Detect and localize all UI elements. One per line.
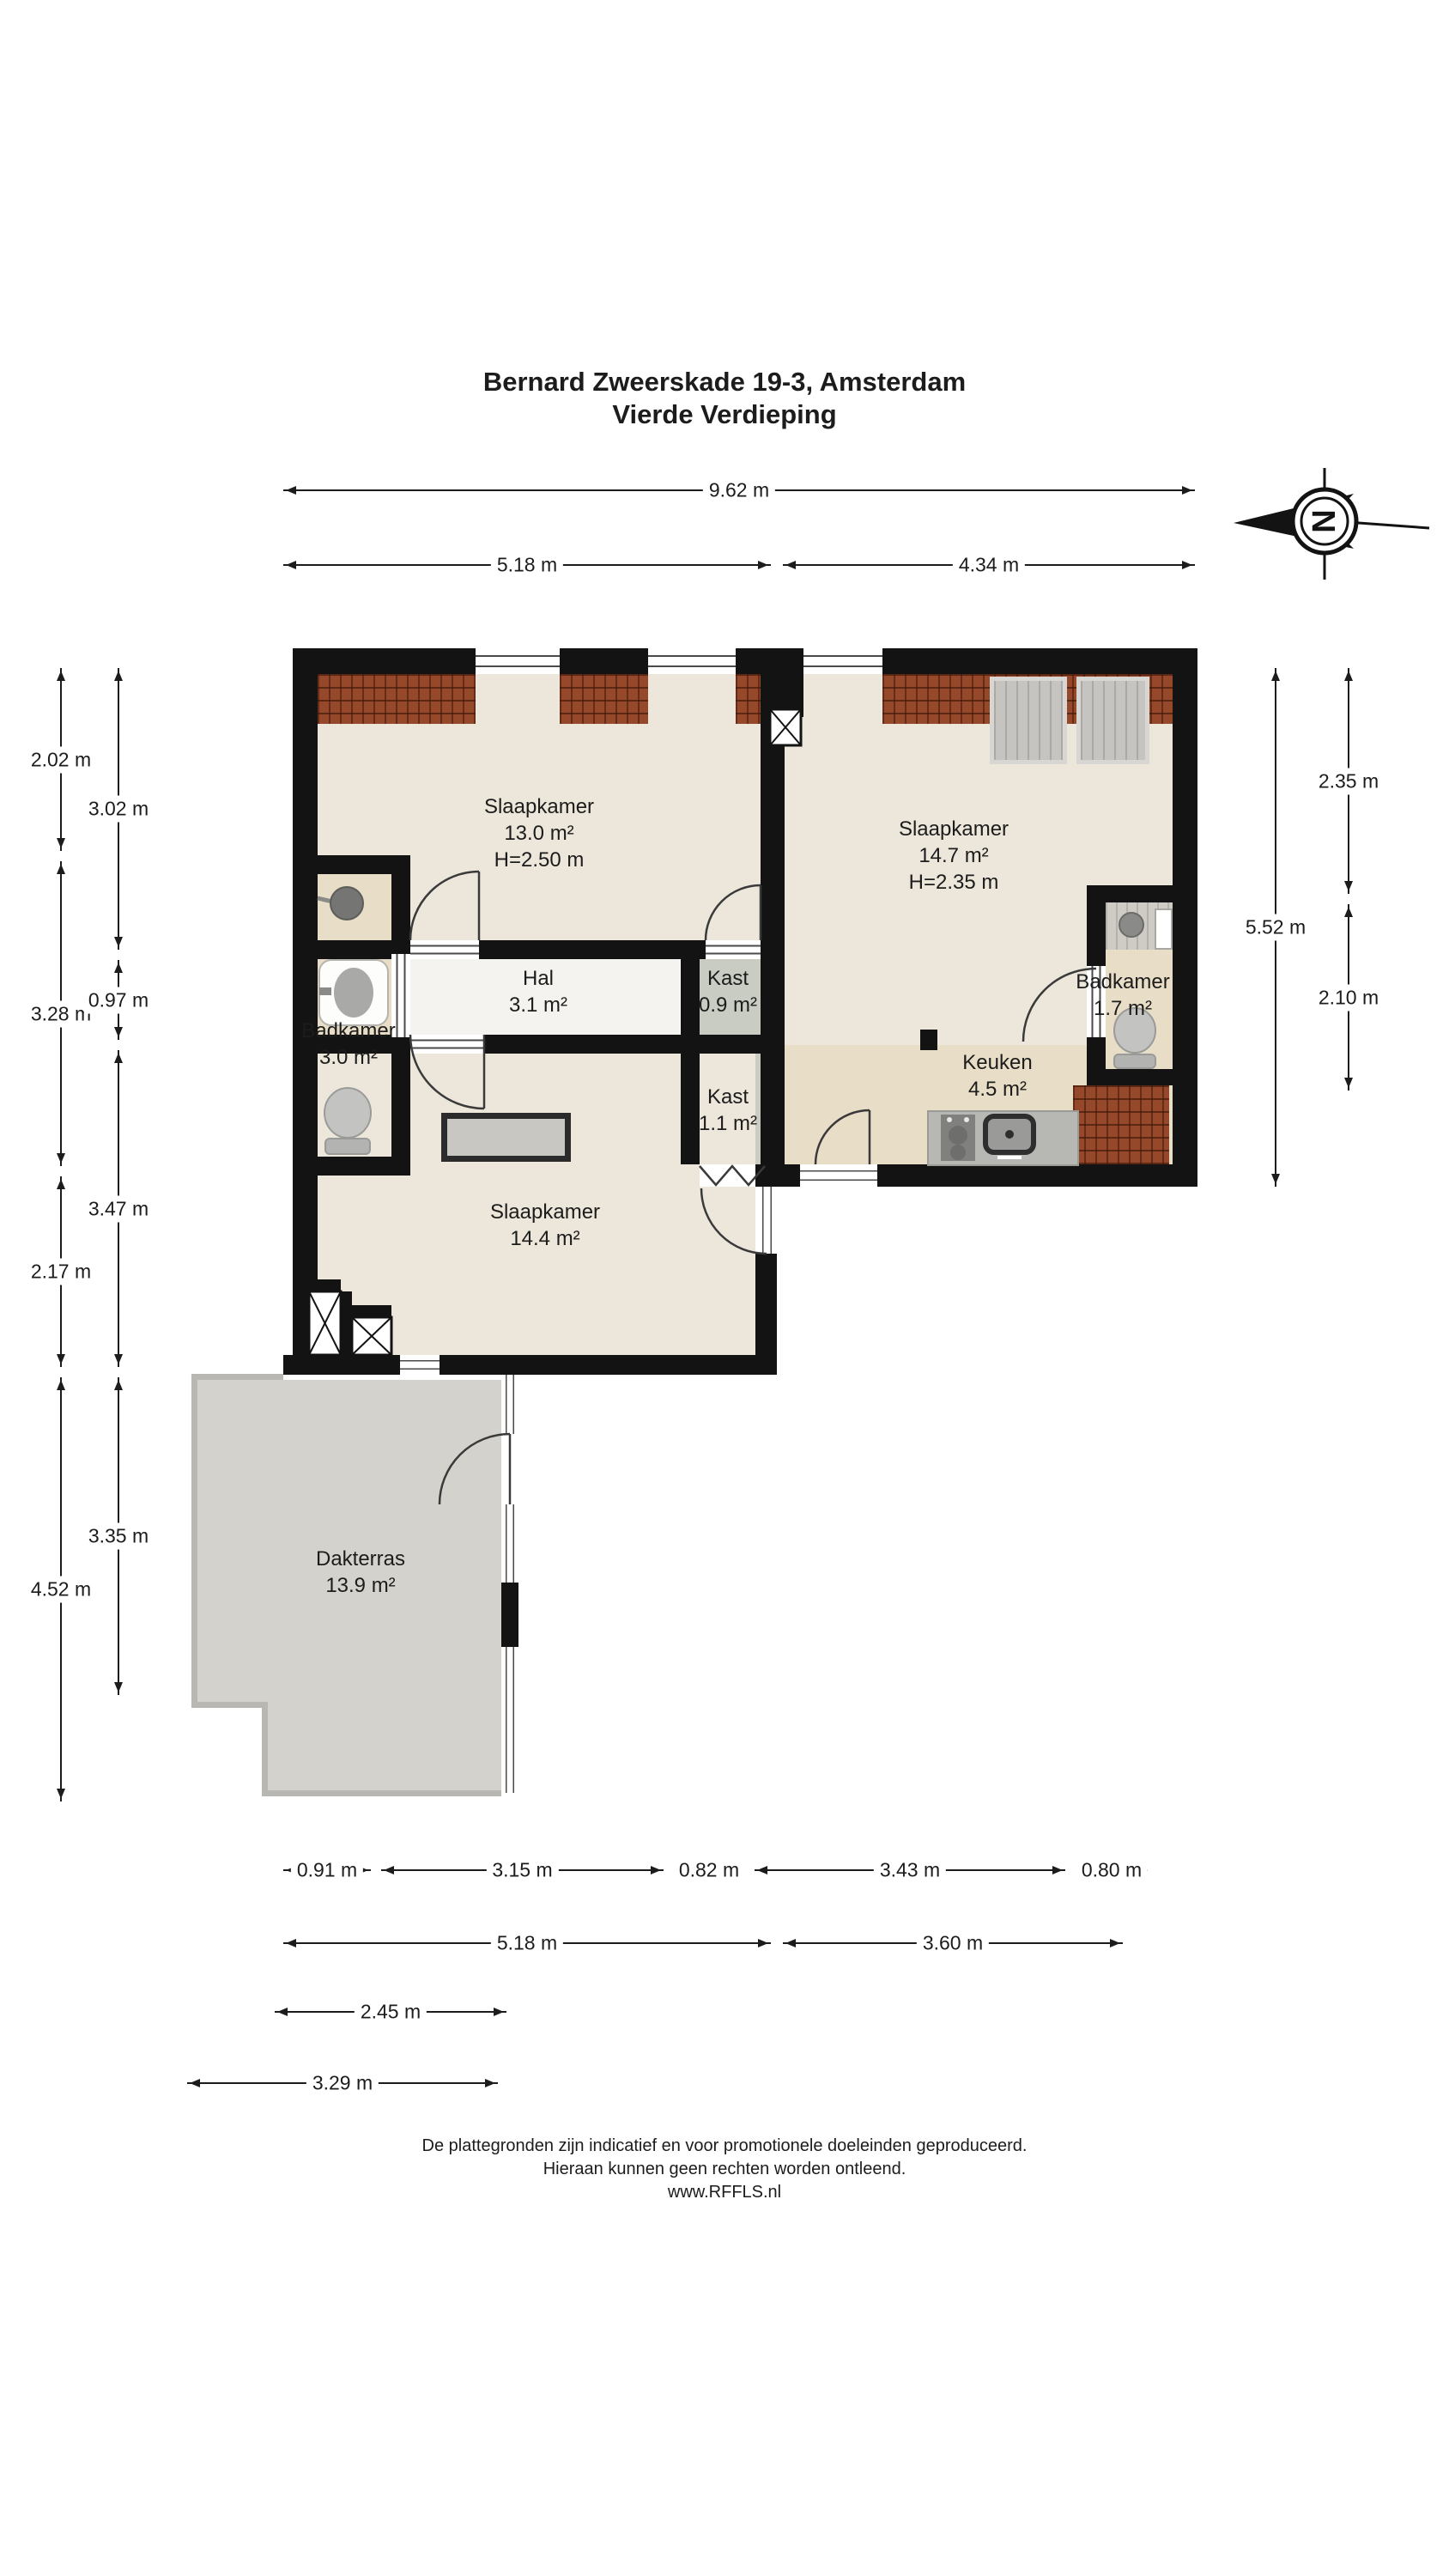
room-label-badkamer-1: Badkamer3.0 m² xyxy=(301,1018,395,1071)
room-label: Dakterras xyxy=(316,1546,405,1572)
room-label-kast-2: Kast1.1 m² xyxy=(699,1084,757,1137)
dimension-label: 0.91 m xyxy=(291,1859,363,1882)
dimension-label: 4.34 m xyxy=(953,554,1025,577)
room-area: 13.0 m² xyxy=(484,820,594,847)
dimension-horizontal: 2.45 m xyxy=(275,2011,506,2013)
arrow-up-icon xyxy=(1271,666,1280,681)
dimension-horizontal: 3.43 m xyxy=(755,1869,1065,1871)
arrow-left-icon xyxy=(753,1866,767,1874)
footer-website: www.RFFLS.nl xyxy=(0,2181,1449,2204)
arrow-down-icon xyxy=(114,1354,123,1369)
arrow-left-icon xyxy=(379,1866,394,1874)
dimension-label: 0.80 m xyxy=(1076,1859,1148,1882)
dimension-vertical: 3.47 m xyxy=(118,1050,119,1367)
arrow-left-icon xyxy=(781,1939,796,1947)
arrow-down-icon xyxy=(57,838,65,853)
dimension-label: 2.17 m xyxy=(27,1259,95,1285)
dimension-label: 3.29 m xyxy=(306,2072,379,2095)
room-area: 13.9 m² xyxy=(316,1572,405,1599)
arrow-down-icon xyxy=(1344,1078,1353,1092)
room-area: 3.0 m² xyxy=(301,1044,395,1071)
room-label: Badkamer xyxy=(301,1018,395,1044)
arrow-up-icon xyxy=(114,958,123,973)
floorplan-page: Bernard Zweerskade 19-3, Amsterdam Vierd… xyxy=(0,0,1449,2576)
room-label-slaapkamer-1: Slaapkamer13.0 m²H=2.50 m xyxy=(484,793,594,873)
dimension-vertical: 3.35 m xyxy=(118,1377,119,1695)
dimension-label: 4.52 m xyxy=(27,1577,95,1603)
arrow-right-icon xyxy=(1110,1939,1125,1947)
arrow-right-icon xyxy=(494,2008,508,2016)
dimension-label: 2.35 m xyxy=(1314,768,1383,794)
room-area: 4.5 m² xyxy=(962,1076,1032,1103)
room-label-dakterras: Dakterras13.9 m² xyxy=(316,1546,405,1599)
dimension-label: 3.60 m xyxy=(917,1932,989,1955)
dimension-horizontal: 0.91 m xyxy=(283,1869,371,1871)
dimension-label: 2.10 m xyxy=(1314,984,1383,1011)
arrow-down-icon xyxy=(114,937,123,951)
arrow-down-icon xyxy=(114,1027,123,1042)
dimension-vertical: 0.97 m xyxy=(118,960,119,1040)
room-label-hal: Hal3.1 m² xyxy=(509,965,567,1018)
arrow-down-icon xyxy=(57,1354,65,1369)
arrow-up-icon xyxy=(57,666,65,681)
dimension-label: 0.82 m xyxy=(673,1859,745,1882)
arrow-down-icon xyxy=(114,1682,123,1697)
dimension-horizontal: 3.60 m xyxy=(783,1942,1123,1944)
arrow-up-icon xyxy=(57,1376,65,1390)
dimension-horizontal: 0.82 m xyxy=(674,1869,744,1871)
room-label: Slaapkamer xyxy=(484,793,594,820)
room-area: 1.1 m² xyxy=(699,1110,757,1137)
dimension-horizontal: 5.18 m xyxy=(283,1942,771,1944)
arrow-down-icon xyxy=(1344,881,1353,896)
room-label: Hal xyxy=(509,965,567,992)
room-label: Keuken xyxy=(962,1049,1032,1076)
dimension-label: 3.35 m xyxy=(84,1523,153,1550)
arrow-right-icon xyxy=(1182,561,1197,569)
dimension-label: 9.62 m xyxy=(703,479,775,502)
dimension-vertical: 2.35 m xyxy=(1348,668,1349,894)
room-label-badkamer-2: Badkamer1.7 m² xyxy=(1076,969,1169,1022)
dimension-vertical: 3.28 m xyxy=(60,861,62,1166)
arrow-up-icon xyxy=(57,1175,65,1189)
dimension-label: 5.52 m xyxy=(1241,914,1310,941)
room-height: H=2.50 m xyxy=(484,847,594,873)
room-area: 3.1 m² xyxy=(509,992,567,1018)
arrow-right-icon xyxy=(1052,1866,1067,1874)
dimension-label: 0.97 m xyxy=(84,987,153,1013)
dimension-label: 2.02 m xyxy=(27,746,95,773)
arrow-left-icon xyxy=(185,2079,200,2087)
arrow-right-icon xyxy=(758,561,773,569)
room-label: Badkamer xyxy=(1076,969,1169,995)
dimension-vertical: 5.52 m xyxy=(1275,668,1276,1187)
room-label-slaapkamer-3: Slaapkamer14.4 m² xyxy=(490,1199,600,1252)
arrow-down-icon xyxy=(57,1153,65,1168)
arrow-up-icon xyxy=(114,666,123,681)
arrow-right-icon xyxy=(485,2079,500,2087)
arrow-up-icon xyxy=(1344,902,1353,917)
arrow-up-icon xyxy=(57,860,65,874)
dimension-label: 3.15 m xyxy=(486,1859,558,1882)
arrow-up-icon xyxy=(114,1048,123,1063)
room-label-keuken: Keuken4.5 m² xyxy=(962,1049,1032,1103)
dimension-horizontal: 4.34 m xyxy=(783,564,1195,566)
footer-disclaimer: De plattegronden zijn indicatief en voor… xyxy=(0,2135,1449,2204)
arrow-down-icon xyxy=(57,1789,65,1803)
room-label: Slaapkamer xyxy=(899,816,1009,842)
room-area: 14.7 m² xyxy=(899,842,1009,869)
dimension-horizontal: 3.29 m xyxy=(187,2082,498,2084)
arrow-down-icon xyxy=(1271,1174,1280,1188)
room-label-slaapkamer-2: Slaapkamer14.7 m²H=2.35 m xyxy=(899,816,1009,896)
dimension-vertical: 3.02 m xyxy=(118,668,119,950)
dimension-vertical: 4.52 m xyxy=(60,1377,62,1801)
room-area: 1.7 m² xyxy=(1076,995,1169,1022)
footer-line-2: Hieraan kunnen geen rechten worden ontle… xyxy=(0,2158,1449,2181)
arrow-up-icon xyxy=(114,1376,123,1390)
dimension-vertical: 2.02 m xyxy=(60,668,62,851)
arrow-right-icon xyxy=(758,1939,773,1947)
room-label: Kast xyxy=(699,965,757,992)
room-label: Kast xyxy=(699,1084,757,1110)
dimension-horizontal: 3.15 m xyxy=(381,1869,664,1871)
dimension-horizontal: 5.18 m xyxy=(283,564,771,566)
room-area: 0.9 m² xyxy=(699,992,757,1018)
dimension-vertical: 2.17 m xyxy=(60,1176,62,1367)
dimension-label: 2.45 m xyxy=(355,2001,427,2024)
room-label: Slaapkamer xyxy=(490,1199,600,1225)
arrow-up-icon xyxy=(1344,666,1353,681)
arrow-left-icon xyxy=(282,486,296,495)
arrow-left-icon xyxy=(282,1939,296,1947)
arrow-right-icon xyxy=(1182,486,1197,495)
dimension-label: 3.02 m xyxy=(84,796,153,823)
room-area: 14.4 m² xyxy=(490,1225,600,1252)
dimension-horizontal: 0.80 m xyxy=(1076,1869,1148,1871)
arrow-right-icon xyxy=(651,1866,665,1874)
footer-line-1: De plattegronden zijn indicatief en voor… xyxy=(0,2135,1449,2158)
dimension-label: 3.47 m xyxy=(84,1195,153,1222)
room-label-kast-1: Kast0.9 m² xyxy=(699,965,757,1018)
arrow-left-icon xyxy=(273,2008,288,2016)
room-height: H=2.35 m xyxy=(899,869,1009,896)
dimension-horizontal: 9.62 m xyxy=(283,489,1195,491)
dimension-vertical: 2.10 m xyxy=(1348,904,1349,1091)
dimension-label: 5.18 m xyxy=(491,554,563,577)
arrow-left-icon xyxy=(781,561,796,569)
arrow-left-icon xyxy=(282,561,296,569)
dimension-label: 5.18 m xyxy=(491,1932,563,1955)
dimension-label: 3.43 m xyxy=(874,1859,946,1882)
